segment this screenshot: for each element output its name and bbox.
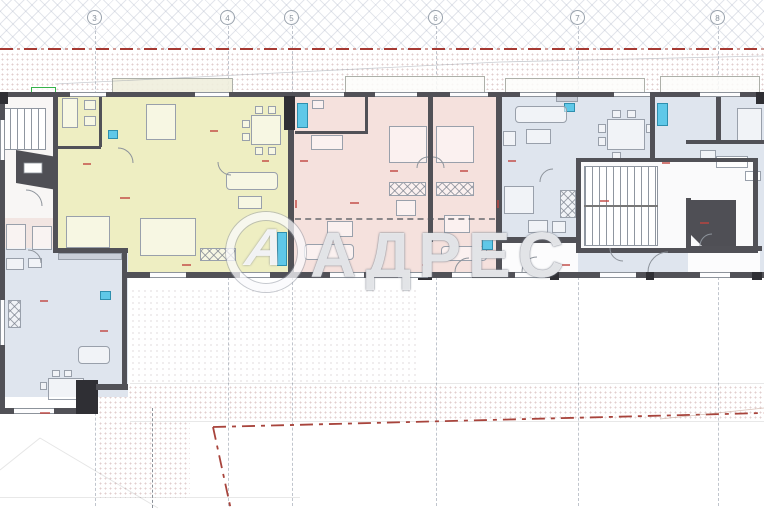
door-arc <box>648 252 668 272</box>
elevator-shaft <box>688 200 736 246</box>
plan-linework <box>0 0 764 510</box>
dimension-mark <box>662 162 670 164</box>
dimension-mark <box>390 170 398 172</box>
property-boundary-line <box>213 427 231 510</box>
door-arc <box>455 258 469 272</box>
dimension-mark <box>562 264 570 266</box>
dimension-mark <box>120 197 130 199</box>
door-arc <box>26 190 42 206</box>
dimension-mark <box>83 163 91 165</box>
dimension-mark <box>262 160 269 162</box>
stair-label-box <box>24 163 42 173</box>
door-arc <box>28 250 41 263</box>
door-arc <box>417 157 428 168</box>
dimension-mark <box>300 160 308 162</box>
boundary-offset-line <box>660 408 764 419</box>
dimension-mark <box>40 300 48 302</box>
dimension-mark <box>210 130 218 132</box>
terrain-line <box>0 438 40 470</box>
property-boundary-line <box>213 413 764 427</box>
dimension-mark <box>700 222 709 224</box>
terrain-contour-line <box>55 56 764 84</box>
terrain-line <box>40 438 158 508</box>
door-arc <box>522 257 537 272</box>
dimension-mark <box>40 412 50 414</box>
dimension-mark <box>182 264 191 266</box>
door-arc <box>610 248 623 261</box>
dimension-mark <box>422 264 430 266</box>
dimension-mark <box>497 200 499 208</box>
floor-plan-canvas: 3 4 5 6 7 8 <box>0 0 764 510</box>
door-arc <box>540 169 553 182</box>
dimension-mark <box>100 330 108 332</box>
dimension-mark <box>508 160 516 162</box>
door-arc <box>218 162 231 175</box>
dimension-mark <box>295 200 297 208</box>
door-arc <box>118 148 133 163</box>
dimension-mark <box>460 170 468 172</box>
door-arc <box>433 157 444 168</box>
dimension-mark <box>600 200 609 202</box>
dimension-mark <box>350 202 359 204</box>
